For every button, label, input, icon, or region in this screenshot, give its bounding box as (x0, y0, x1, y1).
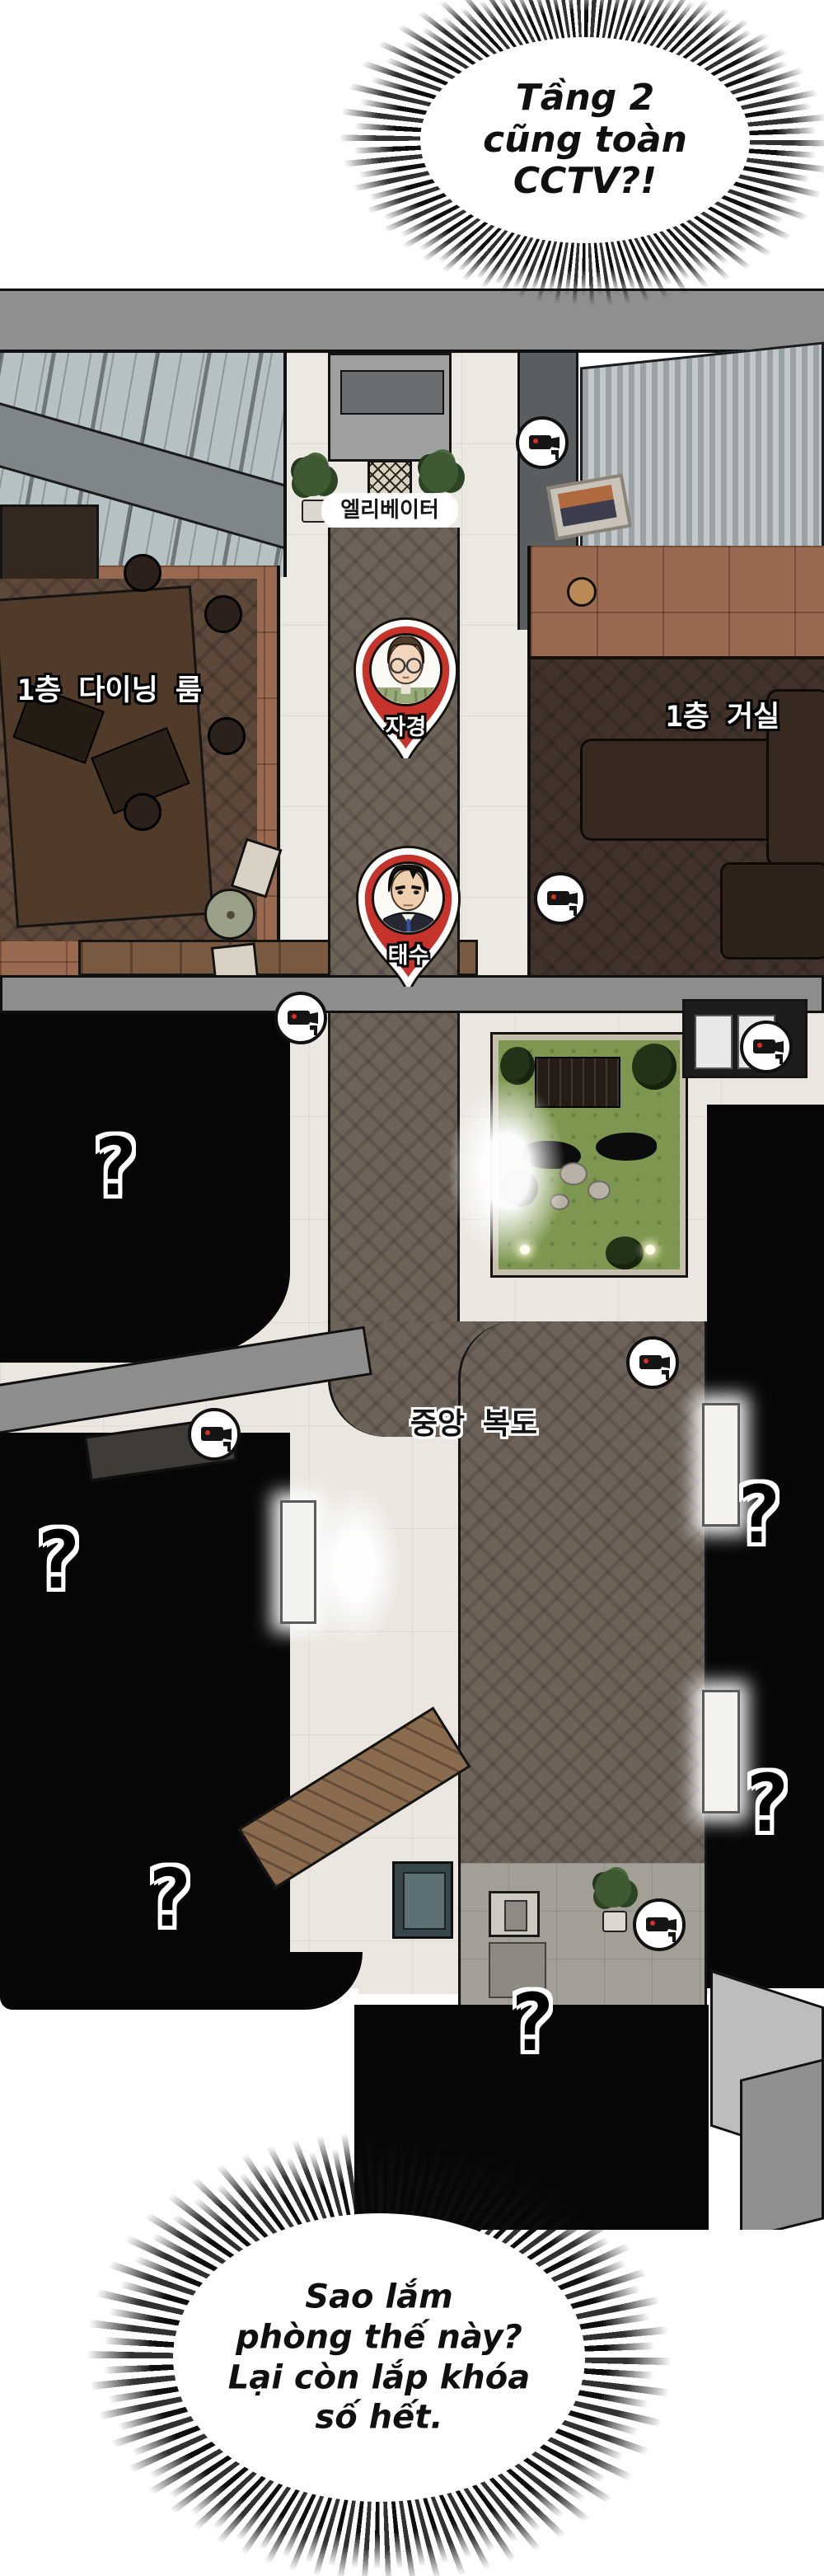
camera-body (201, 1427, 223, 1441)
door-panel (504, 1900, 527, 1931)
picture-image (558, 485, 617, 527)
living-room-label: 1층 거실 (636, 701, 809, 734)
map-pin-label: 자경 (350, 709, 461, 741)
cctv-camera-icon (626, 1336, 679, 1389)
cctv-camera-icon (633, 1898, 686, 1951)
cctv-camera-icon (188, 1408, 241, 1461)
cctv-camera-icon (534, 872, 587, 925)
garden-bush (632, 1044, 677, 1090)
map-pin-jagyeong: 자경 (350, 617, 461, 758)
dining-stool (208, 717, 246, 755)
camera-lens (309, 1012, 318, 1024)
map-pin-label: 태수 (353, 937, 464, 969)
comic-page: 엘리베이터 1층 다이닝 룸 1층 거실 (0, 0, 824, 2576)
end-room-door (489, 1891, 540, 1937)
speech-line: cũng toàn (483, 120, 687, 162)
plant-leaves-icon (420, 452, 458, 493)
speech-text-top: Tầng 2 cũng toàn CCTV?! (483, 77, 687, 203)
elevator-shaft (328, 353, 452, 462)
speech-line: CCTV?! (483, 161, 687, 203)
camera-mount (310, 1025, 317, 1035)
garden-light (645, 1245, 655, 1255)
dining-room-label-line1: 1층 (17, 674, 61, 707)
camera-lens (569, 893, 578, 904)
table-center (227, 911, 235, 919)
speech-text-bottom: Sao lắm phòng thế này? Lại còn lắp khóa … (228, 2277, 531, 2438)
elevator-door (368, 460, 412, 500)
plant-leaves-icon (595, 1870, 631, 1907)
garden-bush (606, 1236, 644, 1269)
camera-led (551, 894, 556, 899)
central-corridor-label: 중앙 복도 (387, 1400, 560, 1443)
speech-line: số hết. (228, 2398, 531, 2438)
speech-line: Sao lắm (228, 2277, 531, 2317)
camera-mount (569, 906, 577, 916)
camera-body (288, 1011, 310, 1025)
camera-led (644, 1358, 648, 1363)
speech-line: Lại còn lắp khóa (228, 2358, 531, 2398)
locked-room-left-edge (0, 1952, 363, 2010)
camera-mount (775, 1054, 783, 1064)
camera-led (205, 1430, 210, 1435)
armchair (720, 862, 824, 960)
camera-mount (668, 1932, 676, 1942)
camera-body (547, 891, 569, 905)
dining-table (0, 585, 214, 928)
camera-body (646, 1917, 668, 1931)
speech-line: phòng thế này? (228, 2317, 531, 2358)
map-pin-taesu: 태수 (353, 845, 464, 987)
speech-line: Tầng 2 (483, 77, 687, 120)
camera-body (529, 435, 551, 449)
camera-led (650, 1921, 655, 1926)
cabinet-door (695, 1015, 733, 1069)
dining-room-label: 1층 다이닝 룸 (15, 674, 204, 707)
camera-mount (551, 450, 559, 460)
stairwell-wall-lower (740, 2058, 824, 2230)
cctv-camera-icon (740, 1021, 793, 1073)
dining-room-label-line2: 다이닝 룸 (78, 674, 202, 707)
window-blinds (580, 341, 824, 579)
cctv-camera-icon (516, 416, 569, 469)
question-mark-icon: ? (725, 1476, 791, 1555)
camera-lens (775, 1041, 784, 1053)
floorplan-panel: 엘리베이터 1층 다이닝 룸 1층 거실 (0, 289, 824, 2230)
dark-shrub (596, 1133, 657, 1161)
dining-stool (204, 595, 242, 633)
display-glass (403, 1872, 446, 1930)
question-mark-icon: ? (25, 1521, 91, 1600)
camera-lens (667, 1919, 677, 1931)
camera-lens (550, 437, 559, 448)
speech-bubble-bottom: Sao lắm phòng thế này? Lại còn lắp khóa … (95, 2139, 663, 2576)
display-case (392, 1861, 453, 1939)
camera-lens (222, 1429, 232, 1440)
camera-body (753, 1039, 775, 1053)
camera-led (292, 1014, 297, 1019)
speech-bubble-top: Tầng 2 cũng toàn CCTV?! (346, 0, 824, 301)
camera-mount (223, 1442, 231, 1452)
round-table (204, 889, 255, 940)
light-glow (428, 1047, 585, 1294)
question-mark-icon: ? (499, 1983, 564, 2062)
camera-mount (662, 1370, 669, 1380)
camera-led (757, 1043, 762, 1048)
lit-doorway (280, 1500, 316, 1624)
garden-rock (588, 1180, 611, 1200)
wall-clock-icon (567, 577, 597, 607)
camera-body (639, 1355, 662, 1369)
camera-lens (661, 1357, 670, 1368)
plant-pot (602, 1911, 627, 1932)
question-mark-icon: ? (82, 1128, 147, 1207)
plant-leaves-icon (293, 455, 331, 496)
dining-stool (124, 793, 162, 831)
question-mark-icon: ? (136, 1859, 202, 1938)
corridor-plant (590, 1870, 636, 1932)
elevator-shaft-screen (340, 370, 444, 415)
camera-led (533, 439, 538, 443)
elevator-label: 엘리베이터 (323, 495, 456, 526)
cctv-camera-icon (274, 992, 327, 1044)
dining-stool (124, 554, 162, 592)
question-mark-icon: ? (733, 1764, 799, 1843)
